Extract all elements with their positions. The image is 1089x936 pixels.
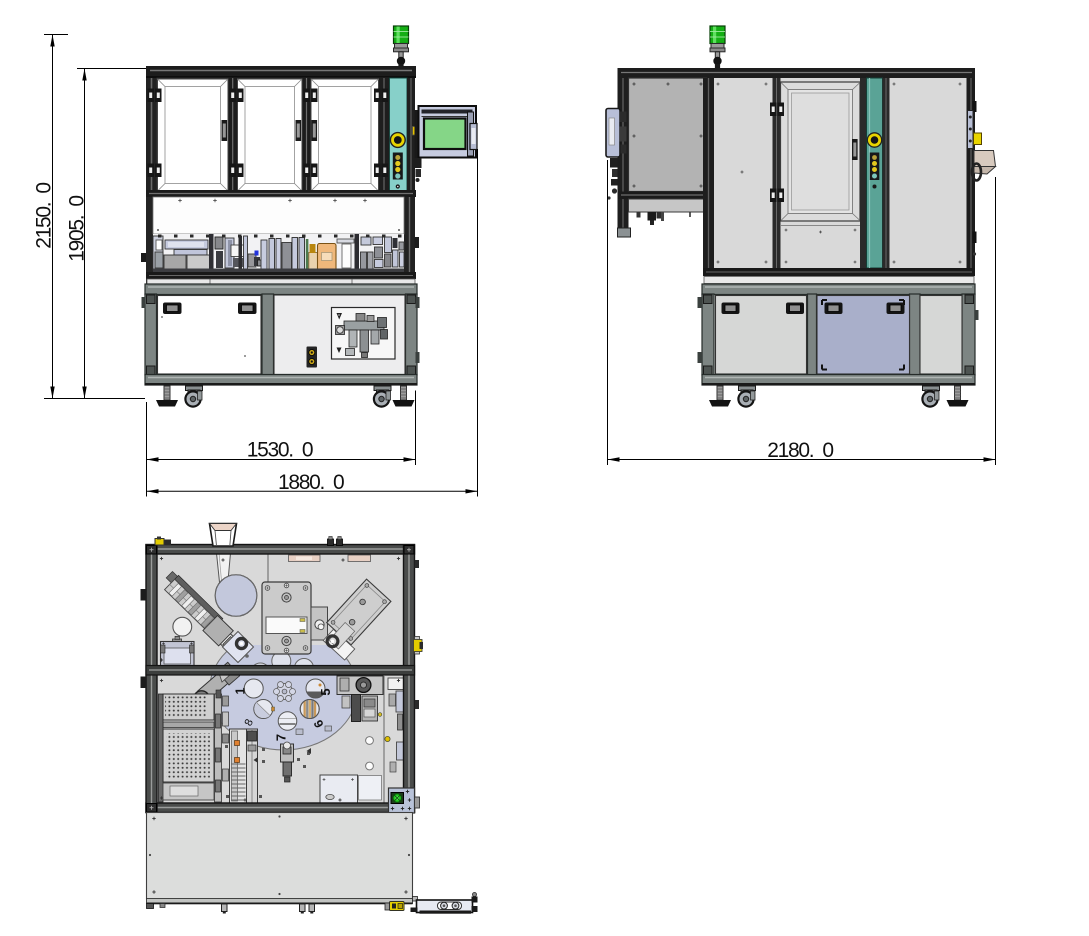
svg-text:2150. 0: 2150. 0 xyxy=(33,183,56,249)
svg-text:1880. 0: 1880. 0 xyxy=(278,471,344,494)
svg-text:1: 1 xyxy=(234,687,248,694)
svg-text:7: 7 xyxy=(274,734,289,741)
svg-text:1530. 0: 1530. 0 xyxy=(247,439,313,462)
svg-text:2180. 0: 2180. 0 xyxy=(767,439,833,462)
svg-text:1905. 0: 1905. 0 xyxy=(66,196,89,262)
svg-text:5: 5 xyxy=(318,688,333,695)
